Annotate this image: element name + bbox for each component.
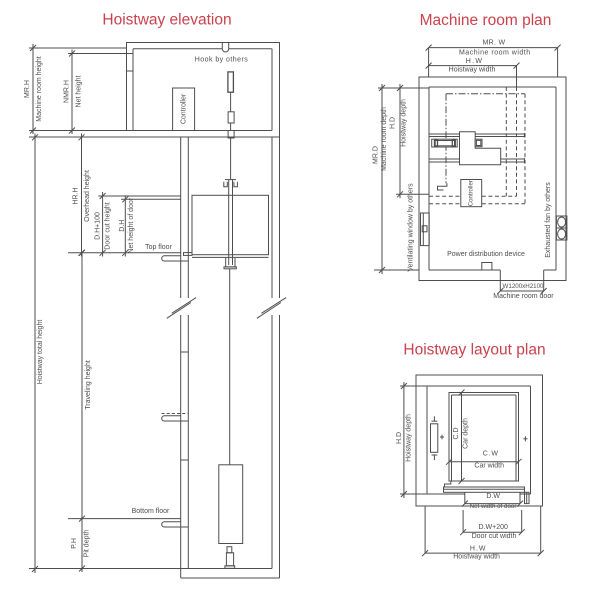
svg-text:Hoistway layout plan: Hoistway layout plan	[403, 342, 545, 359]
svg-text:MR.D: MR.D	[373, 146, 380, 164]
svg-text:Power distribution device: Power distribution device	[447, 251, 525, 258]
svg-text:C.D: C.D	[453, 427, 460, 439]
svg-text:H.D: H.D	[390, 117, 397, 129]
svg-text:Hoistway total height: Hoistway total height	[37, 320, 44, 385]
svg-text:D.W: D.W	[486, 493, 500, 500]
svg-text:Traveling height: Traveling height	[85, 360, 92, 410]
svg-text:Machine room door: Machine room door	[493, 293, 554, 300]
svg-text:D.H+100: D.H+100	[95, 212, 102, 240]
svg-text:Net height: Net height	[76, 75, 83, 107]
svg-text:MR. W: MR. W	[483, 39, 506, 46]
svg-text:HR.H: HR.H	[73, 187, 80, 204]
svg-text:Car depth: Car depth	[463, 418, 470, 449]
svg-text:Machine room plan: Machine room plan	[420, 12, 552, 29]
svg-text:Hoistway elevation: Hoistway elevation	[102, 12, 231, 29]
svg-text:Overhead height: Overhead height	[84, 170, 91, 222]
svg-text:Door cut width: Door cut width	[472, 533, 517, 540]
svg-text:Controller: Controller	[468, 180, 474, 206]
svg-text:H.W: H.W	[466, 58, 484, 65]
svg-text:Net height of door: Net height of door	[128, 197, 135, 253]
svg-text:Door cut height: Door cut height	[105, 202, 112, 250]
svg-text:Bottom floor: Bottom floor	[132, 508, 170, 515]
svg-text:Controller: Controller	[180, 93, 187, 124]
svg-text:Ventilating window by others: Ventilating window by others	[408, 183, 415, 272]
svg-text:Hoistway width: Hoistway width	[453, 553, 500, 560]
svg-text:Top floor: Top floor	[145, 244, 173, 251]
svg-text:Net width of door: Net width of door	[470, 503, 517, 510]
svg-text:H.D: H.D	[396, 432, 403, 444]
svg-text:Hoistway depth: Hoistway depth	[406, 414, 413, 462]
svg-text:MR.H: MR.H	[24, 80, 31, 98]
svg-text:NMR.H: NMR.H	[64, 80, 71, 103]
svg-text:C.W: C.W	[483, 450, 499, 457]
svg-text:Car width: Car width	[474, 463, 504, 470]
svg-text:D.W+200: D.W+200	[479, 524, 508, 531]
svg-text:D.H: D.H	[119, 220, 126, 232]
svg-text:Hoistway depth: Hoistway depth	[401, 99, 408, 147]
svg-text:Exhausted fan by others: Exhausted fan by others	[545, 182, 552, 258]
svg-text:Machine room depth: Machine room depth	[381, 107, 388, 171]
svg-text:Machine room width: Machine room width	[459, 50, 531, 57]
svg-text:Pit depth: Pit depth	[84, 530, 91, 558]
svg-text:P.H: P.H	[71, 538, 78, 549]
svg-text:H.W: H.W	[470, 546, 487, 553]
svg-text:Machine room height: Machine room height	[36, 56, 43, 121]
svg-text:Hoistway width: Hoistway width	[449, 67, 496, 74]
svg-text:W1200xH2100: W1200xH2100	[503, 283, 544, 290]
svg-text:Hook by others: Hook by others	[195, 57, 248, 64]
